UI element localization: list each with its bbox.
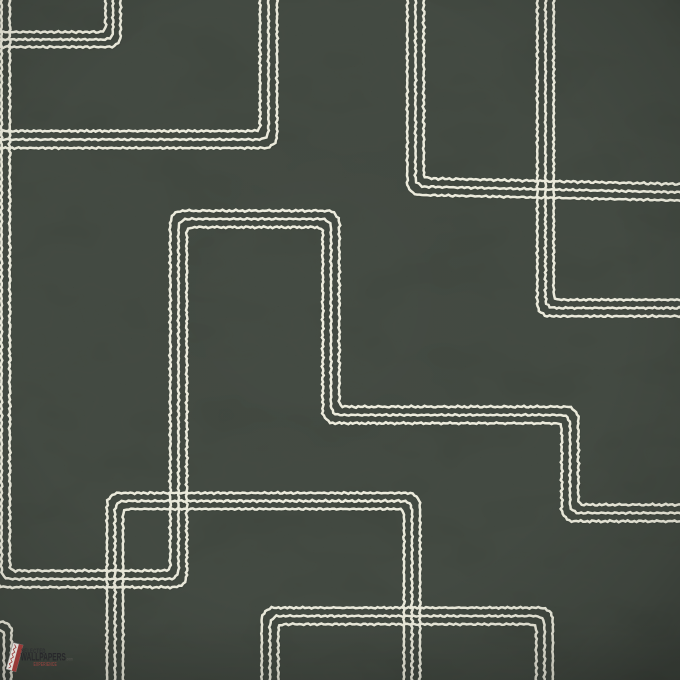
svg-text:.com: .com xyxy=(66,657,74,662)
svg-text:EXPERIENCE: EXPERIENCE xyxy=(34,661,57,667)
